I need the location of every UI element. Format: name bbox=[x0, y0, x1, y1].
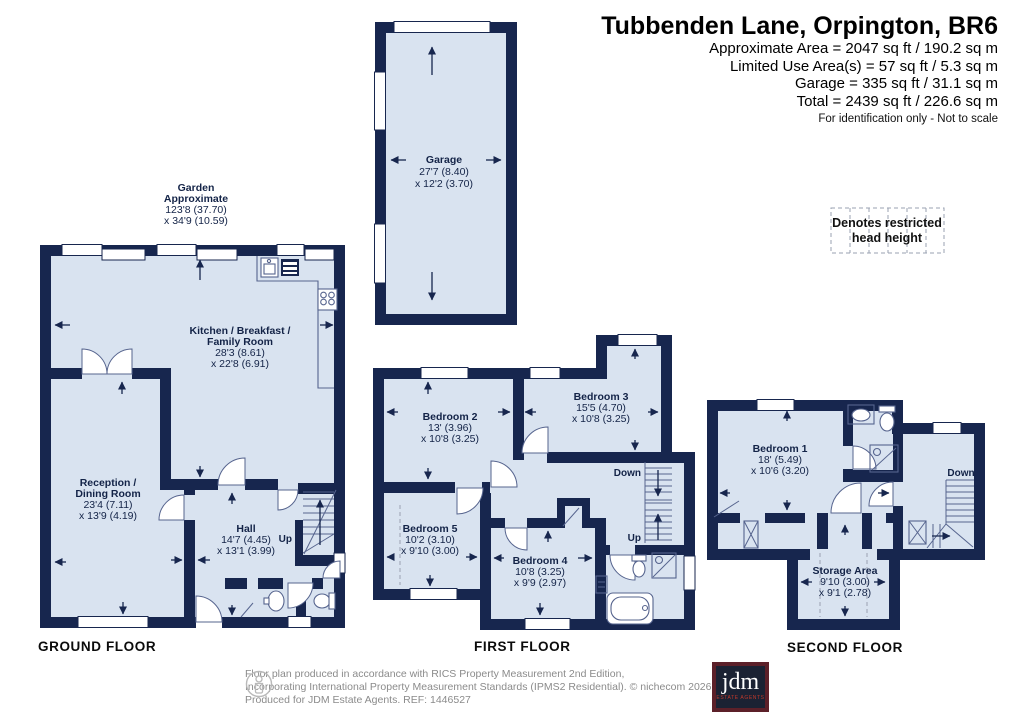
reception-label: Reception / Dining Room 23'4 (7.11) x 13… bbox=[75, 477, 140, 522]
first-up-label: Up bbox=[628, 533, 641, 544]
svg-text:x 34'9 (10.59): x 34'9 (10.59) bbox=[164, 215, 228, 227]
total-area: Total = 2439 sq ft / 226.6 sq m bbox=[601, 93, 998, 111]
bedroom4-label: Bedroom 4 10'8 (3.25) x 9'9 (2.97) bbox=[513, 555, 568, 589]
second-floor-title: SECOND FLOOR bbox=[787, 640, 903, 655]
ground-floor-title: GROUND FLOOR bbox=[38, 639, 156, 654]
ground-floor-plan: Kitchen / Breakfast / Family Room 28'3 (… bbox=[38, 245, 345, 655]
garage-dim2: x 12'2 (3.70) bbox=[415, 178, 473, 190]
svg-text:x 10'6 (3.20): x 10'6 (3.20) bbox=[751, 465, 809, 477]
svg-text:x 13'9 (4.19): x 13'9 (4.19) bbox=[79, 510, 137, 522]
garage-plan: Garage 27'7 (8.40) x 12'2 (3.70) bbox=[375, 22, 518, 326]
footer-text: Floor plan produced in accordance with R… bbox=[245, 668, 714, 707]
approximate-area: Approximate Area = 2047 sq ft / 190.2 sq… bbox=[601, 40, 998, 58]
page-title: Tubbenden Lane, Orpington, BR6 bbox=[601, 12, 998, 40]
hob-icon bbox=[318, 289, 337, 310]
svg-text:x 9'10 (3.00): x 9'10 (3.00) bbox=[401, 545, 459, 557]
bedroom2-label: Bedroom 2 13' (3.96) x 10'8 (3.25) bbox=[421, 411, 479, 445]
footer-line2: Incorporating International Property Mea… bbox=[245, 681, 714, 694]
garage-door-opening bbox=[394, 22, 490, 33]
ground-up-label: Up bbox=[279, 534, 292, 545]
sink-icon bbox=[261, 258, 278, 277]
person-icon bbox=[245, 670, 273, 698]
svg-text:x 10'8 (3.25): x 10'8 (3.25) bbox=[421, 433, 479, 445]
garage-dim1: 27'7 (8.40) bbox=[419, 166, 469, 178]
bedroom1-label: Bedroom 1 18' (5.49) x 10'6 (3.20) bbox=[751, 443, 809, 477]
legend-line1: Denotes restricted bbox=[832, 216, 942, 230]
second-floor-plan: Bedroom 1 18' (5.49) x 10'6 (3.20) Stora… bbox=[707, 400, 985, 656]
first-down-label: Down bbox=[614, 468, 641, 479]
disclaimer-note: For identification only - Not to scale bbox=[601, 113, 998, 125]
toilet-icon bbox=[879, 406, 895, 431]
first-floor-title: FIRST FLOOR bbox=[474, 639, 571, 654]
footer: Floor plan produced in accordance with R… bbox=[245, 668, 714, 707]
bedroom5-label: Bedroom 5 10'2 (3.10) x 9'10 (3.00) bbox=[401, 523, 459, 557]
restricted-head-height-legend: Denotes restricted head height bbox=[831, 208, 944, 253]
bedroom3-label: Bedroom 3 15'5 (4.70) x 10'8 (3.25) bbox=[572, 391, 630, 425]
limited-use-area: Limited Use Area(s) = 57 sq ft / 5.3 sq … bbox=[601, 58, 998, 76]
storage-label: Storage Area 9'10 (3.00) x 9'1 (2.78) bbox=[813, 565, 878, 599]
svg-text:x 13'1 (3.99): x 13'1 (3.99) bbox=[217, 545, 275, 557]
footer-line3: Produced for JDM Estate Agents. REF: 144… bbox=[245, 694, 714, 707]
garage-name: Garage bbox=[426, 154, 462, 166]
second-down-label: Down bbox=[947, 468, 974, 479]
svg-text:x 9'1 (2.78): x 9'1 (2.78) bbox=[819, 587, 871, 599]
jdm-logo-text: jdm bbox=[716, 669, 765, 695]
header: Tubbenden Lane, Orpington, BR6 Approxima… bbox=[601, 12, 998, 125]
footer-line1: Floor plan produced in accordance with R… bbox=[245, 668, 714, 681]
cooker-icon bbox=[281, 259, 299, 276]
svg-text:x 22'8 (6.91): x 22'8 (6.91) bbox=[211, 358, 269, 370]
bath-icon bbox=[607, 593, 653, 624]
garden-label: Garden Approximate 123'8 (37.70) x 34'9 … bbox=[164, 182, 228, 227]
jdm-logo: jdm ESTATE AGENTS bbox=[712, 662, 769, 712]
legend-line2: head height bbox=[852, 231, 923, 245]
svg-text:x 9'9 (2.97): x 9'9 (2.97) bbox=[514, 577, 566, 589]
garage-area: Garage = 335 sq ft / 31.1 sq m bbox=[601, 75, 998, 93]
toilet-icon bbox=[632, 555, 646, 577]
svg-text:x 10'8 (3.25): x 10'8 (3.25) bbox=[572, 413, 630, 425]
floorplan-page: Garage 27'7 (8.40) x 12'2 (3.70) Garden … bbox=[0, 0, 1020, 721]
first-floor-plan: Bedroom 2 13' (3.96) x 10'8 (3.25) Bedro… bbox=[373, 335, 695, 655]
jdm-logo-subtext: ESTATE AGENTS bbox=[716, 695, 765, 701]
toilet-icon bbox=[314, 593, 335, 609]
